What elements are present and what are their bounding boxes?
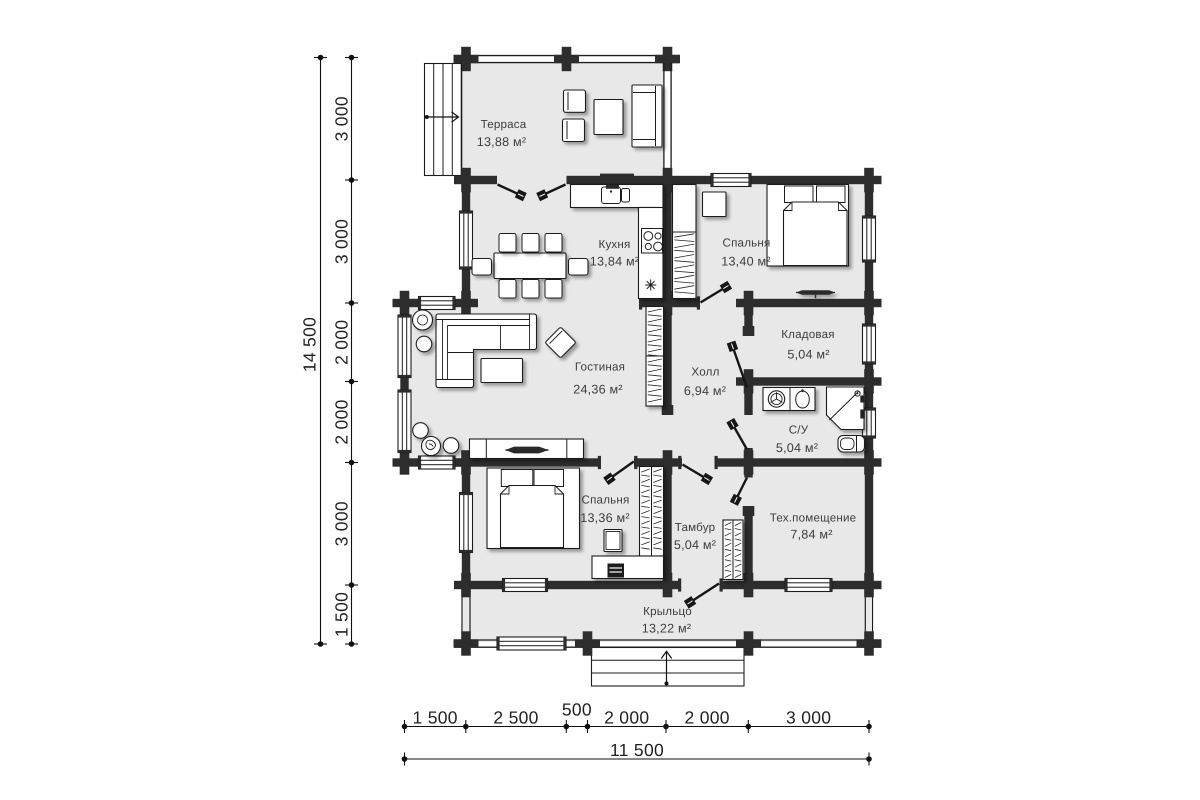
svg-text:Холл: Холл: [691, 366, 719, 379]
svg-text:Тамбур: Тамбур: [675, 521, 716, 534]
svg-text:13,36 м²: 13,36 м²: [580, 511, 629, 525]
svg-text:3 000: 3 000: [332, 219, 352, 264]
svg-text:2 500: 2 500: [493, 708, 538, 728]
svg-text:Спальня: Спальня: [723, 237, 771, 250]
svg-text:11 500: 11 500: [610, 740, 664, 760]
svg-text:13,88 м²: 13,88 м²: [477, 135, 526, 149]
svg-text:С/У: С/У: [789, 424, 809, 437]
svg-text:5,04 м²: 5,04 м²: [776, 441, 818, 455]
svg-text:13,40 м²: 13,40 м²: [721, 254, 770, 268]
svg-text:Спальня: Спальня: [582, 494, 630, 507]
svg-text:2 000: 2 000: [685, 708, 730, 728]
svg-text:Гостиная: Гостиная: [575, 361, 625, 374]
svg-text:1 500: 1 500: [413, 708, 458, 728]
svg-text:2 000: 2 000: [332, 399, 352, 444]
svg-text:Терраса: Терраса: [481, 118, 527, 131]
svg-text:500: 500: [562, 700, 592, 720]
svg-text:1 500: 1 500: [332, 592, 352, 637]
svg-text:6,94 м²: 6,94 м²: [684, 384, 726, 398]
svg-text:2 000: 2 000: [604, 708, 649, 728]
svg-text:Тех.помещение: Тех.помещение: [770, 511, 857, 524]
svg-text:Кухня: Кухня: [598, 238, 630, 251]
svg-text:13,22 м²: 13,22 м²: [642, 622, 691, 636]
svg-text:2 000: 2 000: [332, 320, 352, 365]
svg-text:14 500: 14 500: [300, 317, 320, 372]
svg-text:24,36 м²: 24,36 м²: [573, 382, 622, 396]
svg-text:5,04 м²: 5,04 м²: [674, 538, 716, 552]
svg-text:Кладовая: Кладовая: [781, 328, 835, 341]
svg-text:13,84 м²: 13,84 м²: [590, 254, 639, 268]
svg-text:Крыльцо: Крыльцо: [643, 605, 692, 618]
svg-text:3 000: 3 000: [786, 708, 831, 728]
svg-text:3 000: 3 000: [332, 96, 352, 141]
svg-text:3 000: 3 000: [332, 501, 352, 546]
svg-text:5,04 м²: 5,04 м²: [787, 347, 829, 361]
svg-text:7,84 м²: 7,84 м²: [790, 528, 832, 542]
